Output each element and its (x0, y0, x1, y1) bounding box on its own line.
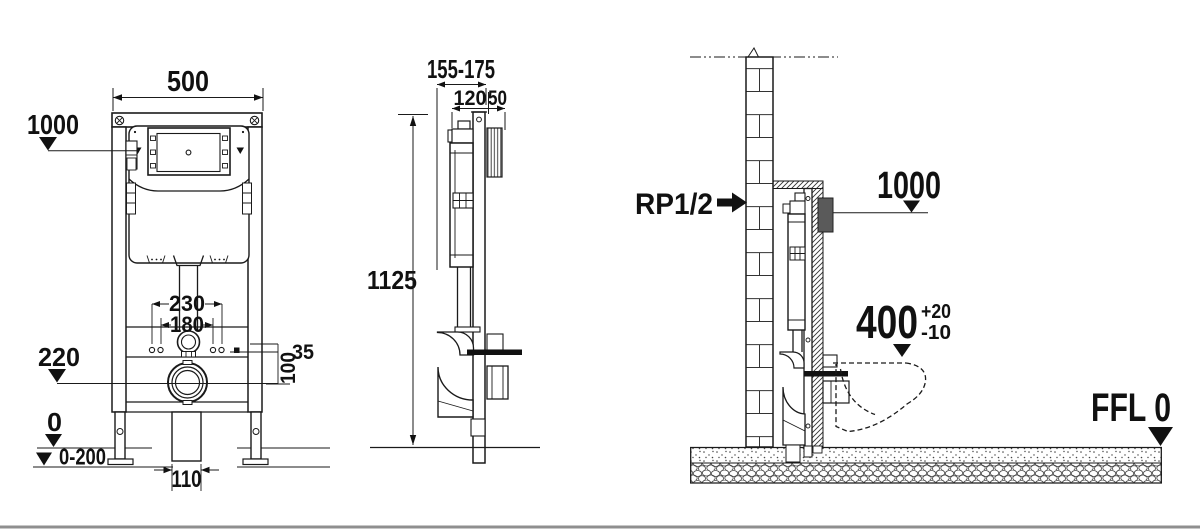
label-water-connection: RP1/2 (635, 188, 713, 221)
dim-frame-height: 1125 (367, 265, 417, 295)
dim-pan-height: 400 (856, 296, 918, 348)
duct-shelf (773, 181, 823, 189)
installation-view: RP1/2 1000 400 +20 -10 FFL 0 (635, 48, 1173, 483)
dim-frame-width: 500 (167, 66, 209, 98)
dim-tolerance-minus: -10 (921, 322, 951, 344)
drain-pipe (172, 412, 201, 461)
side-bracket (127, 183, 136, 214)
outlet-flange (168, 361, 207, 405)
technical-drawing: 500 1000 230 180 35 100 220 0 0-200 110 (0, 0, 1200, 530)
corner-bolt-icon (250, 116, 258, 124)
fixing-hole (219, 347, 224, 352)
dim-outlet-height: 220 (38, 342, 80, 372)
dim-offset-100: 100 (277, 352, 300, 384)
brick-wall (746, 57, 773, 447)
foot-plate (243, 459, 268, 465)
drawing-page: 500 1000 230 180 35 100 220 0 0-200 110 (0, 0, 1200, 530)
label-finished-floor: FFL 0 (1091, 386, 1171, 430)
front-view: 500 1000 230 180 35 100 220 0 0-200 110 (27, 66, 330, 493)
seat-fixing-bar (467, 350, 522, 356)
level-marker-icon (893, 344, 911, 357)
insulation-layer (690, 463, 1162, 483)
install-cistern (788, 214, 805, 330)
side-bracket (243, 183, 252, 214)
dim-floor-zero: 0 (47, 407, 62, 437)
level-marker-icon (48, 369, 66, 383)
install-annotations: RP1/2 1000 400 +20 -10 FFL 0 (635, 165, 1173, 446)
dim-fixing-inner: 180 (170, 312, 204, 337)
floor-section (690, 445, 1162, 483)
dim-adjust-range: 0-200 (59, 444, 106, 470)
right-arrow-icon (717, 193, 747, 213)
foot-plate (108, 459, 133, 465)
fixing-hole (149, 347, 154, 352)
flush-plate-sleeve (487, 128, 502, 177)
drain-through-floor (786, 445, 800, 462)
level-marker-icon (39, 137, 57, 151)
screed-layer (690, 448, 1162, 463)
pan-connector (823, 381, 849, 403)
outlet-elbow (783, 387, 805, 445)
floor-bracket (471, 419, 485, 436)
side-view: 155-175 120 50 1125 (367, 54, 540, 463)
level-marker-icon (1148, 427, 1173, 446)
flush-plate-section (818, 198, 833, 232)
corner-bolt-icon (115, 116, 123, 124)
dim-depth-range: 155-175 (427, 54, 495, 84)
frame-legs (108, 412, 268, 465)
dim-tolerance-plus: +20 (921, 301, 951, 323)
level-marker-icon (36, 453, 52, 466)
side-frame (471, 112, 502, 463)
fixing-hole (158, 347, 163, 352)
dim-drain-width: 110 (172, 466, 202, 493)
dim-actuation-height: 1000 (27, 109, 79, 140)
outlet-spigot (487, 366, 508, 399)
fixing-hole (210, 347, 215, 352)
